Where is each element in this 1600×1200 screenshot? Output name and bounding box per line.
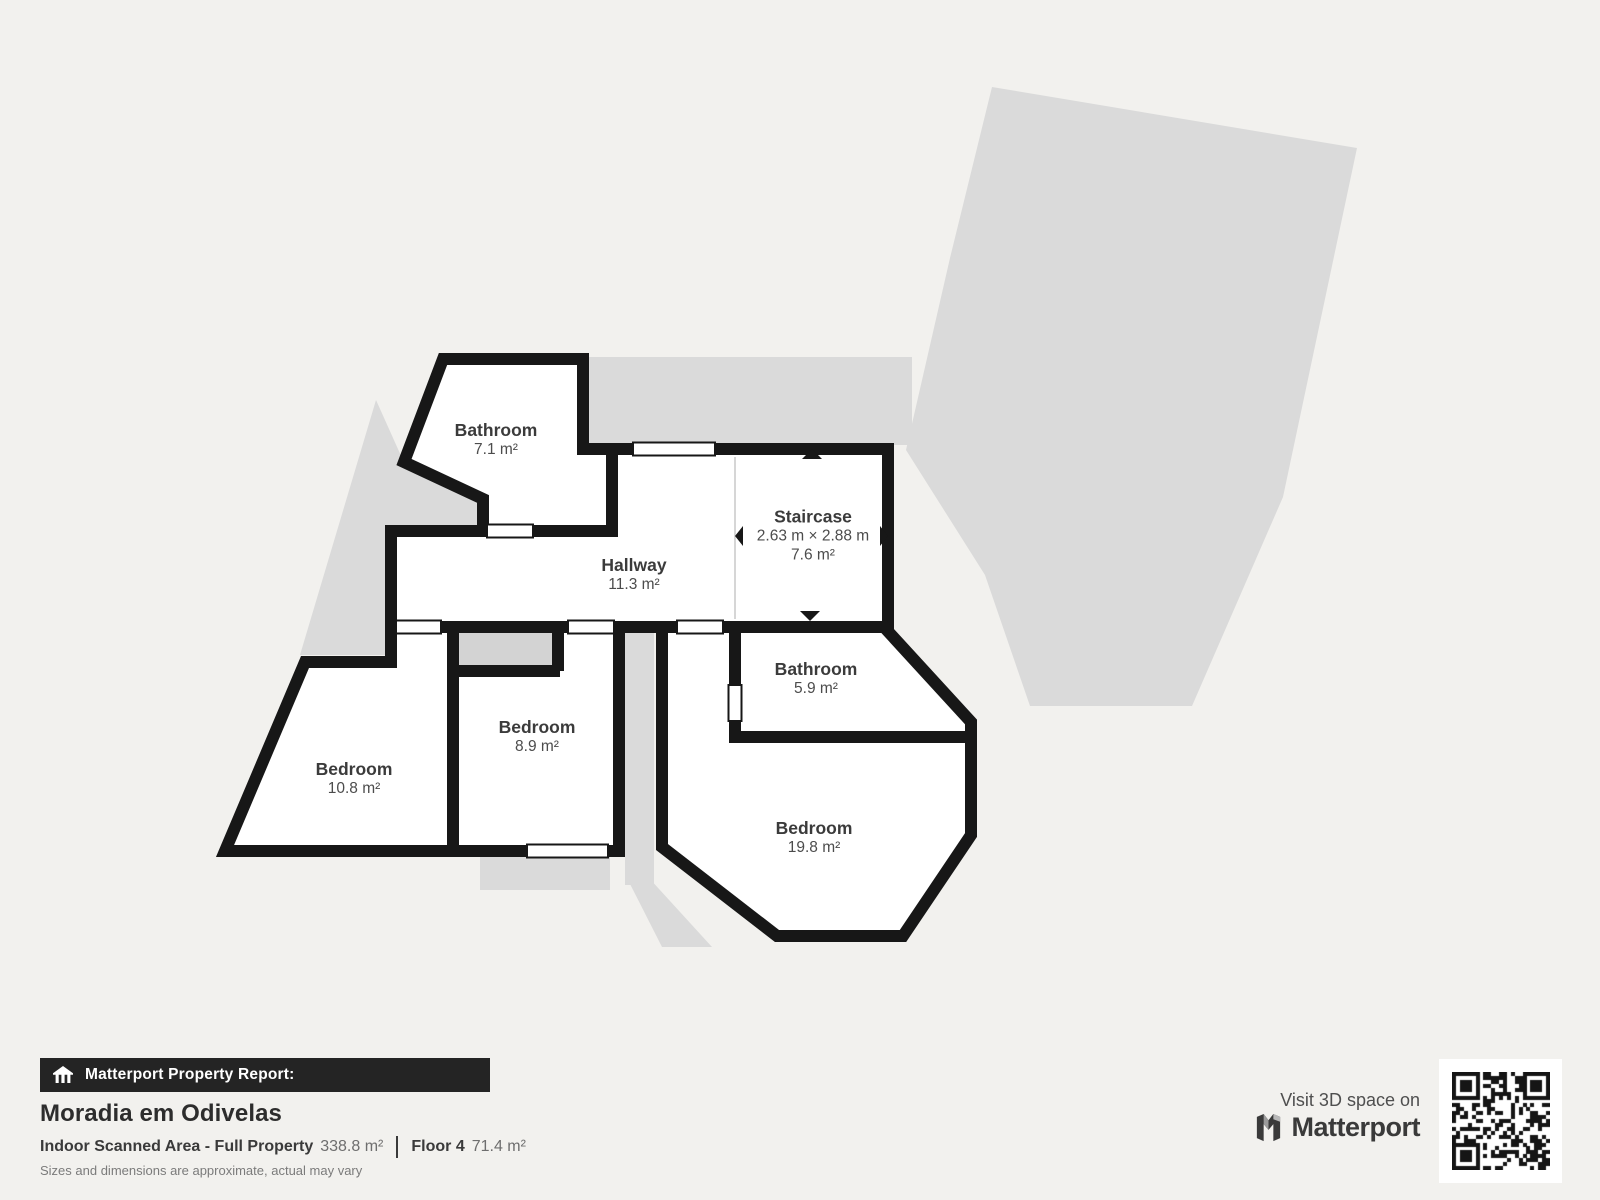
door-bedroom-right: [677, 621, 723, 634]
room-bedroom-bathroom-block: [662, 627, 971, 936]
visit-3d-label: Visit 3D space on: [1280, 1090, 1420, 1111]
property-report-page: Bathroom 7.1 m² Hallway 11.3 m² Staircas…: [0, 0, 1600, 1200]
house-icon: [52, 1065, 74, 1085]
matterport-brand: Matterport: [1253, 1112, 1421, 1143]
info-divider: [396, 1136, 398, 1158]
report-bar-label: Matterport Property Report:: [85, 1066, 295, 1084]
matterport-wordmark: Matterport: [1292, 1112, 1421, 1143]
scanned-area-value: 338.8 m²: [320, 1138, 383, 1156]
window-bedroom-middle: [527, 845, 608, 858]
door-bathroom-lower: [729, 685, 742, 721]
door-bedroom-left: [396, 621, 441, 634]
disclaimer-text: Sizes and dimensions are approximate, ac…: [40, 1163, 362, 1178]
door-hallway-top: [633, 443, 715, 456]
shadow-upper-floor: [906, 87, 1357, 706]
door-bedroom-middle: [568, 621, 614, 634]
shadow-niche-bedroom: [459, 633, 552, 665]
floor-area-value: 71.4 m²: [472, 1138, 526, 1156]
room-bedroom-left: [225, 627, 453, 851]
scan-info-line: Indoor Scanned Area - Full Property 338.…: [40, 1136, 526, 1158]
shadow-strip-middle: [625, 633, 654, 885]
report-header-bar: Matterport Property Report:: [40, 1058, 490, 1092]
floor-plan: [0, 0, 1600, 1200]
shadow-below-bedroom: [480, 857, 610, 890]
qr-code: [1452, 1072, 1550, 1170]
shadow-band-top: [588, 357, 912, 445]
qr-panel: [1439, 1059, 1562, 1183]
matterport-logo-icon: [1253, 1112, 1284, 1143]
door-bathroom-upper: [487, 525, 533, 538]
floor-label: Floor 4: [411, 1138, 464, 1156]
scanned-area-label: Indoor Scanned Area - Full Property: [40, 1138, 313, 1156]
property-title: Moradia em Odivelas: [40, 1100, 282, 1128]
